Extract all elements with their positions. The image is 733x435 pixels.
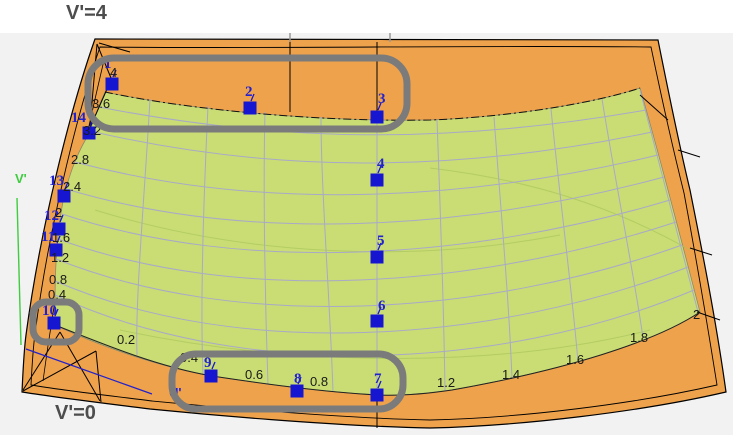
control-point-5[interactable] (371, 251, 384, 264)
control-point-1[interactable] (106, 78, 119, 91)
control-point-9[interactable] (205, 370, 218, 383)
control-point-7[interactable] (371, 389, 384, 402)
control-point-14[interactable] (83, 127, 96, 140)
control-point-13[interactable] (58, 190, 71, 203)
control-point-4[interactable] (371, 174, 384, 187)
control-point-12[interactable] (53, 223, 66, 236)
cad-viewport-page: V'=4 (0, 0, 733, 435)
v-equals-4-annotation: V'=4 (66, 2, 107, 25)
control-point-8[interactable] (291, 385, 304, 398)
control-point-11[interactable] (50, 244, 63, 257)
control-point-2[interactable] (244, 102, 257, 115)
v-equals-0-annotation: V'=0 (55, 402, 96, 425)
control-point-3[interactable] (371, 111, 384, 124)
viewport-canvas[interactable] (0, 0, 733, 435)
control-point-6[interactable] (371, 315, 384, 328)
control-point-10[interactable] (48, 317, 61, 330)
